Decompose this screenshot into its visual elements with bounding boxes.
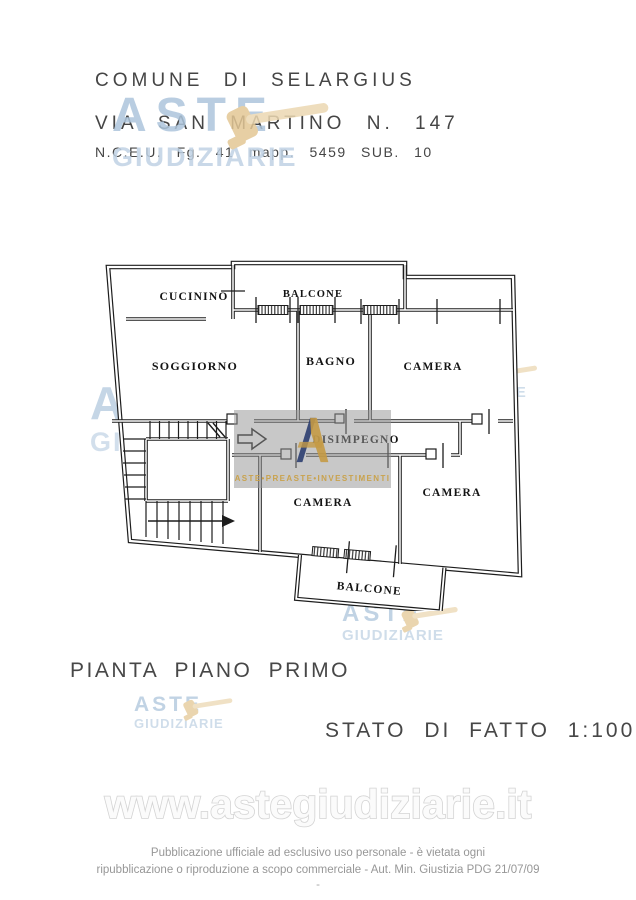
site-url-text: www.astegiudiziarie.it: [104, 781, 532, 827]
gavel-icon: [182, 694, 236, 722]
room-label-soggiorno: SOGGIORNO: [152, 359, 238, 373]
room-label-camera-top-right: CAMERA: [404, 361, 463, 373]
watermark-aste-text: ASTE: [134, 694, 224, 715]
agency-watermark-overlay: ASTE•PREASTE•INVESTIMENTI: [234, 410, 391, 488]
site-url-watermark: www.astegiudiziarie.it: [58, 770, 578, 836]
watermark-giudiziarie-text: GIUDIZIARIE: [342, 628, 444, 643]
window-symbols: [258, 306, 397, 315]
aste-giudiziarie-watermark: ASTE GIUDIZIARIE: [134, 694, 224, 730]
room-label-cucinino: CUCININO: [159, 291, 228, 303]
room-label-balcone-top: BALCONE: [283, 289, 343, 300]
room-label-bagno: BAGNO: [306, 354, 356, 368]
header-municipality: COMUNE DI SELARGIUS: [95, 70, 416, 92]
plan-title: PIANTA PIANO PRIMO: [70, 659, 350, 683]
header-address: VIA SAN MARTINO N. 147: [95, 113, 459, 135]
agency-watermark-text: ASTE•PREASTE•INVESTIMENTI: [235, 474, 391, 483]
footer-disclaimer-line1: Pubblicazione ufficiale ad esclusivo uso…: [0, 847, 636, 859]
room-label-camera-center: CAMERA: [294, 497, 353, 509]
room-label-camera-bottom-right: CAMERA: [423, 487, 482, 499]
footer-disclaimer-line2: ripubblicazione o riproduzione a scopo c…: [0, 864, 636, 876]
watermark-giudiziarie-text: GIUDIZIARIE: [134, 717, 224, 730]
scale-note: STATO DI FATTO 1:100: [325, 719, 635, 743]
header-cadastral-ref: N.C.E.U. Fg. 41 mapp. 5459 SUB. 10: [95, 144, 433, 160]
footer-dash: -: [0, 879, 636, 891]
agency-logo: [290, 414, 334, 464]
window-symbol: [312, 547, 339, 558]
